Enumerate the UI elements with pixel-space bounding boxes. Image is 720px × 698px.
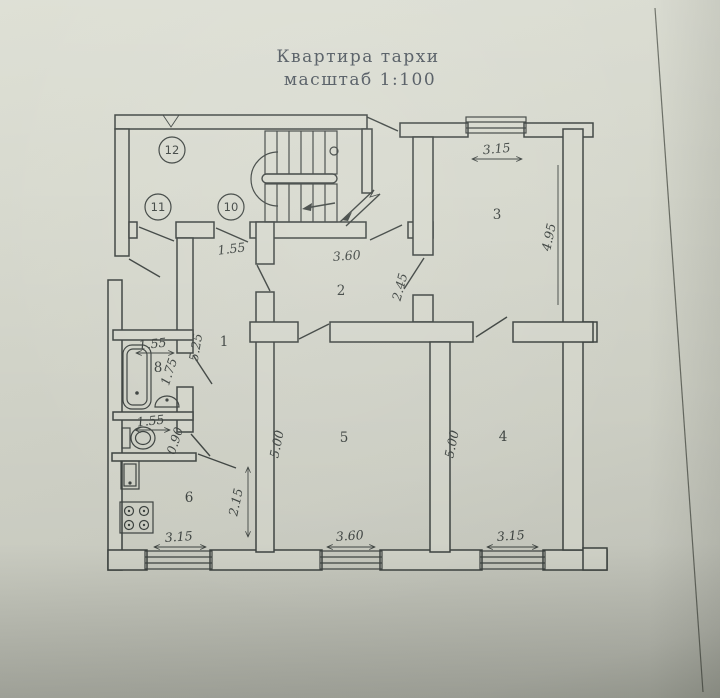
room-label-6: 6 (185, 490, 194, 506)
dim-room3-depth: 4.95 (538, 222, 559, 253)
door-closet (139, 227, 174, 241)
room-label-5: 5 (340, 430, 349, 446)
door-room2 (257, 265, 270, 291)
circled-number-10-label: 10 (224, 200, 239, 214)
window-room3-top (466, 117, 526, 133)
paper-crease-line (655, 8, 703, 692)
stair-direction-arrow (302, 203, 335, 211)
photographed-floor-plan-sheet: Квартира тархи масштаб 1:100 (0, 0, 720, 698)
stair-rail (262, 174, 337, 183)
title-line-2: масштаб 1:100 (284, 70, 436, 90)
windows (145, 117, 545, 569)
dim-room2-width: 3.60 (332, 247, 361, 264)
staircase (251, 131, 380, 226)
circled-number-10: 10 (218, 194, 244, 220)
door-room5 (299, 324, 329, 339)
stove-icon (120, 502, 153, 533)
title-line-1: Квартира тархи (276, 47, 439, 67)
dim-hall-width: 1.55 (217, 239, 246, 257)
circled-number-11: 11 (145, 194, 171, 220)
dim-wc-width: 1.55 (136, 412, 165, 430)
dim-kitchen-depth: 2.15 (225, 487, 246, 518)
door-room4 (476, 317, 507, 337)
kitchen-sink-icon (121, 461, 139, 489)
room-label-3: 3 (493, 207, 502, 223)
stair-break-mark (340, 190, 380, 226)
stair-treads (277, 131, 325, 222)
room-number-labels: 1 2 3 4 5 6 8 (154, 207, 508, 506)
door-entry (129, 259, 160, 277)
circled-number-12: 12 (159, 137, 185, 163)
window-room5-bottom (320, 551, 382, 569)
dim-room4-width: 3.15 (496, 527, 525, 544)
circled-number-11-label: 11 (151, 200, 166, 214)
dim-bath-width: 1.55 (138, 335, 167, 353)
door-kitchen (198, 454, 236, 468)
floor-plan-drawing: Квартира тархи масштаб 1:100 (0, 0, 720, 698)
dim-room5-width: 3.60 (335, 527, 364, 544)
room-label-4: 4 (499, 429, 508, 445)
door-stair-hall (370, 225, 402, 240)
washbasin-icon (155, 396, 179, 407)
dim-room3-width: 3.15 (482, 140, 511, 157)
circled-number-12-label: 12 (165, 143, 180, 157)
dim-room2-depth: 2.45 (389, 271, 411, 303)
window-room4-bottom (480, 551, 545, 569)
room-label-1: 1 (220, 334, 229, 350)
dimension-labels: 1.55 3.60 2.45 3.15 4.95 5.25 1.55 1.75 … (135, 140, 559, 547)
bathtub-icon (123, 345, 151, 409)
plan-title: Квартира тархи масштаб 1:100 (276, 47, 439, 90)
room-label-2: 2 (337, 283, 346, 299)
window-kitchen-bottom (145, 551, 212, 569)
dim-kitchen-width: 3.15 (164, 528, 193, 545)
walls (108, 115, 607, 570)
